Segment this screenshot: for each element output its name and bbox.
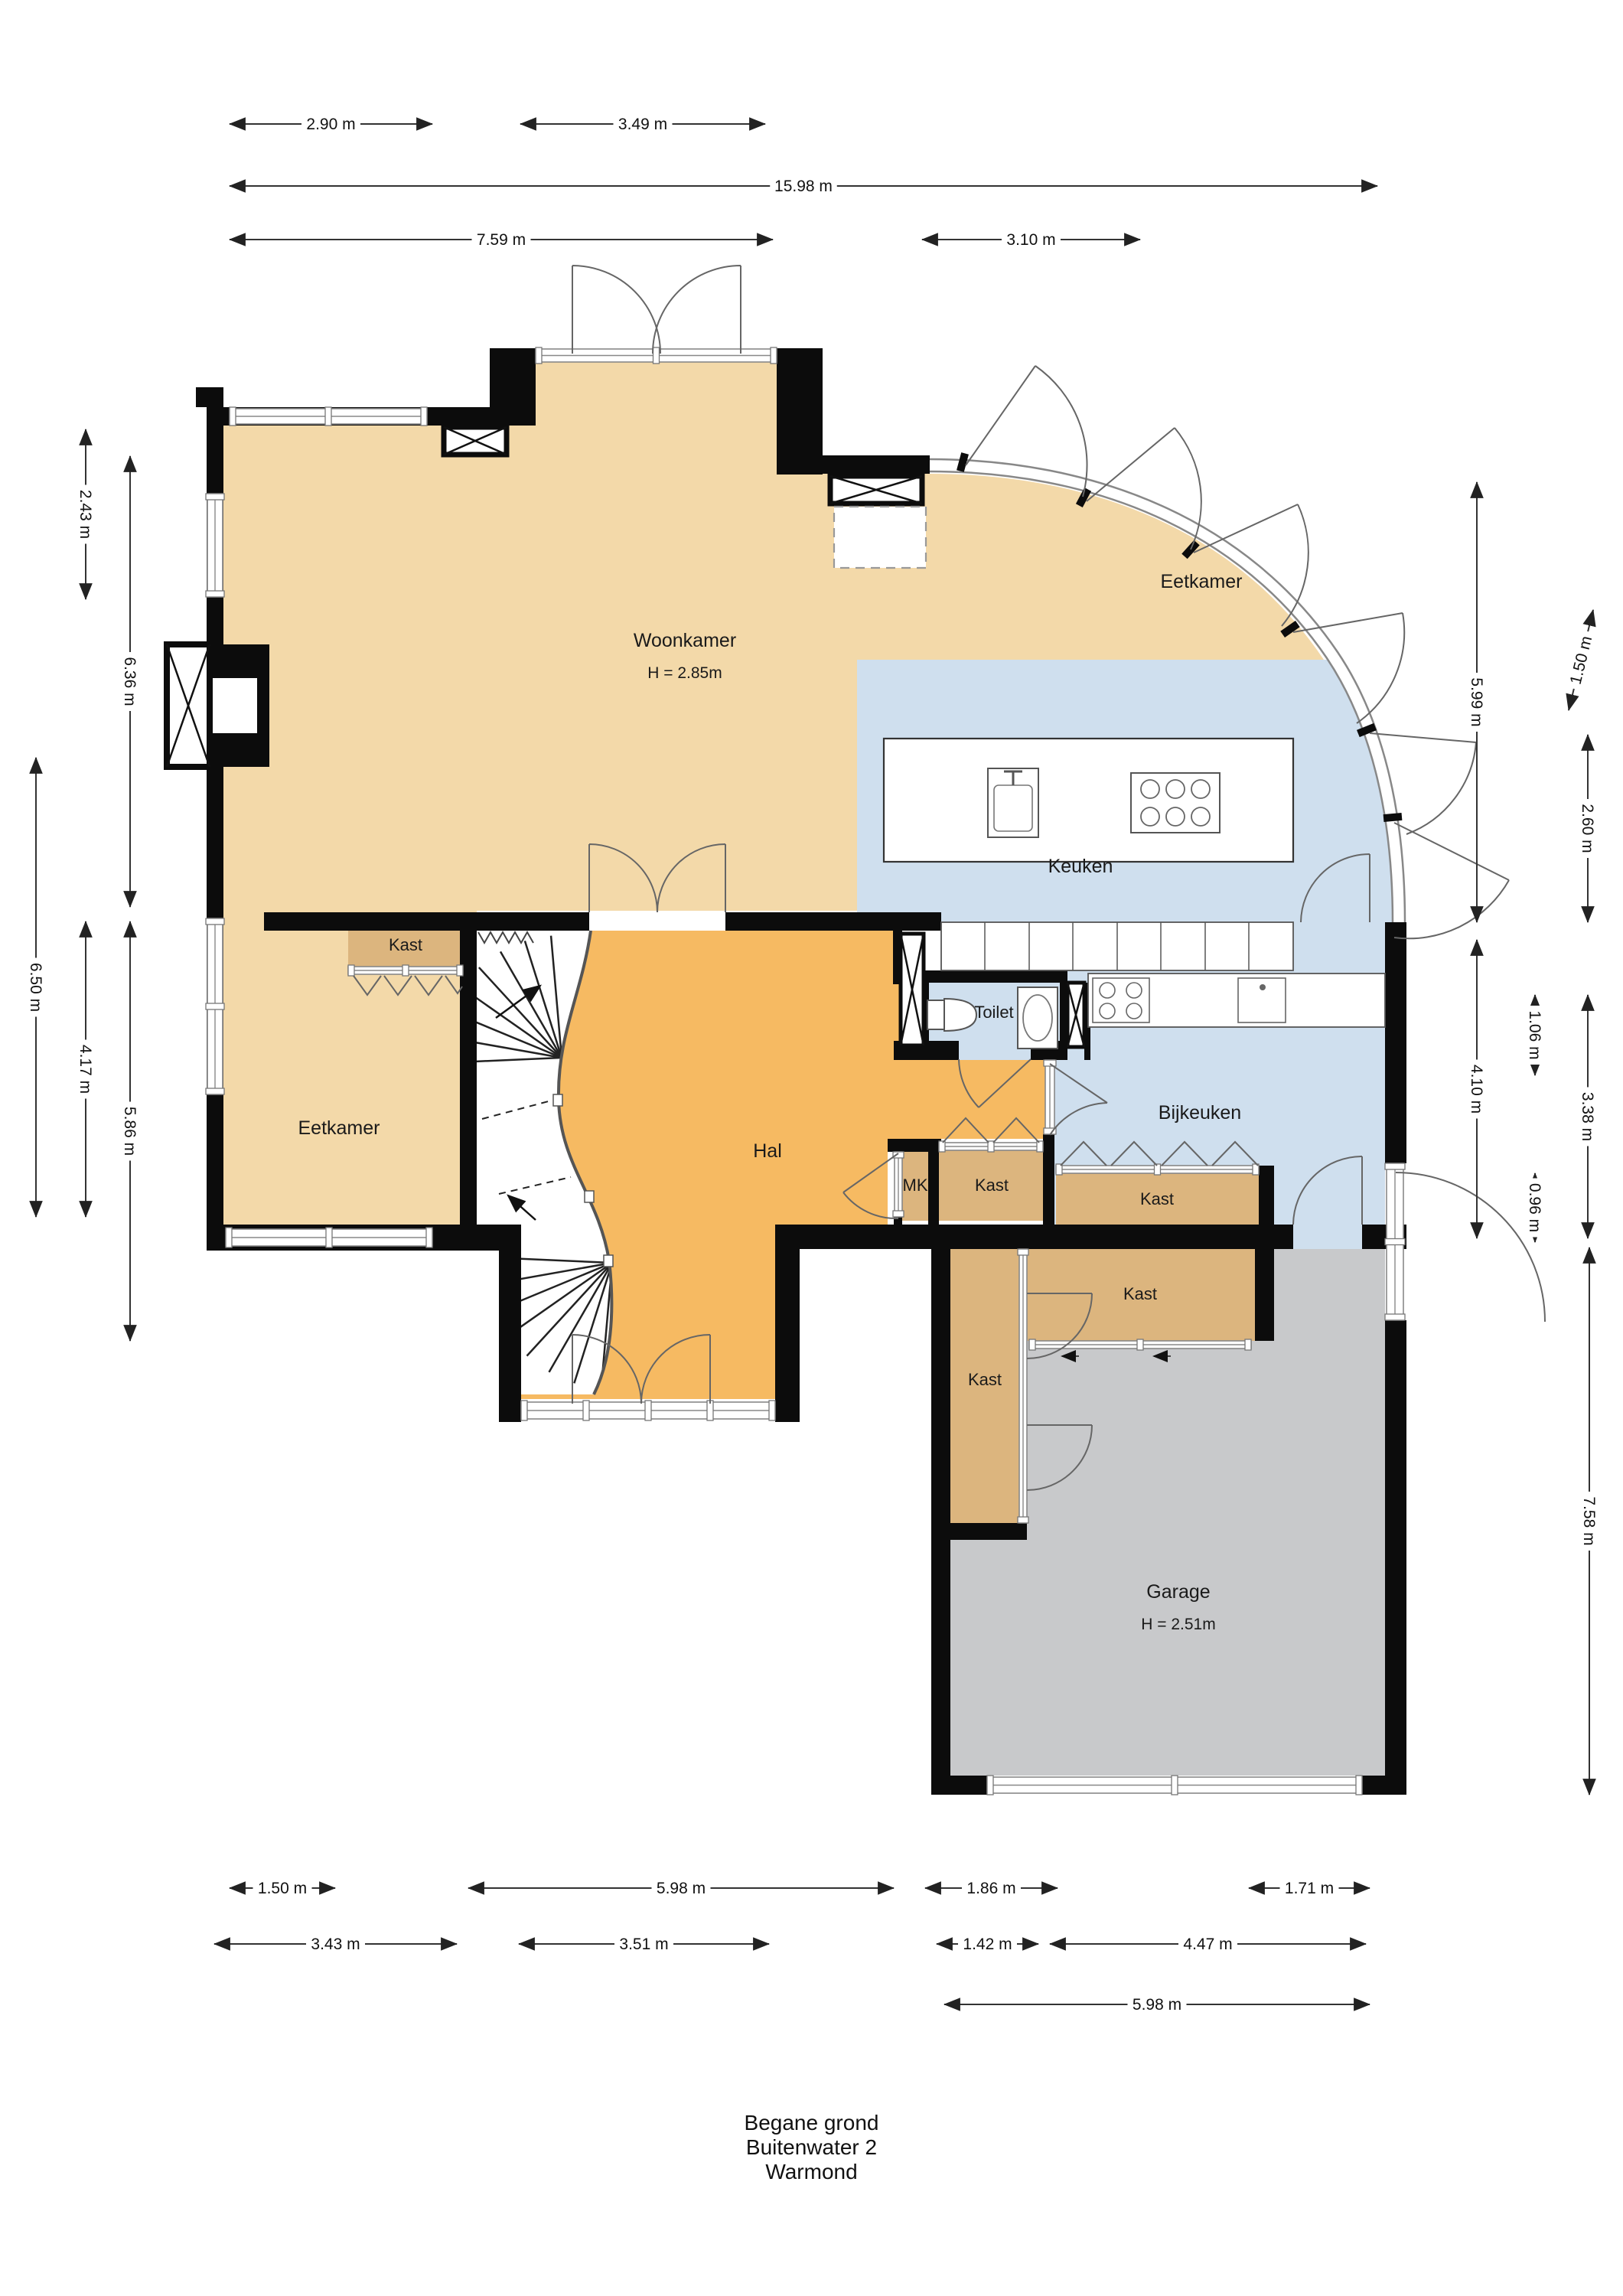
wall-segment <box>1043 1134 1054 1225</box>
window-mullion <box>1172 1776 1178 1795</box>
window-mullion <box>988 1141 994 1152</box>
door-swing <box>1396 1172 1545 1322</box>
dimension-label: 2.60 m <box>1579 804 1596 853</box>
window-mullion <box>1385 1314 1405 1320</box>
window-mullion <box>1044 1060 1056 1066</box>
wall-segment <box>1255 1249 1274 1341</box>
dimension-label: 3.43 m <box>311 1936 360 1953</box>
dimension-label: 15.98 m <box>774 178 833 195</box>
dimension-bottom-25: 4.47 m <box>1050 1934 1366 1954</box>
wall-segment <box>210 644 269 678</box>
window-mullion <box>457 965 463 976</box>
room-sublabel-woonkamer: H = 2.85m <box>647 664 722 682</box>
dimension-left-6: 6.36 m <box>120 456 140 907</box>
window-mullion <box>893 1152 904 1158</box>
window-mullion <box>536 347 542 364</box>
dimension-label: 7.58 m <box>1580 1496 1598 1545</box>
dimension-label: 3.10 m <box>1006 231 1055 249</box>
window-mullion <box>206 494 224 500</box>
window-mullion <box>1018 1517 1028 1523</box>
dimension-label: 5.98 m <box>1133 1996 1181 2014</box>
dimension-label: 2.43 m <box>77 490 94 539</box>
dimension-right-12: 2.60 m <box>1578 735 1598 922</box>
wall-segment <box>499 1225 521 1422</box>
dimension-label: 1.71 m <box>1285 1880 1334 1897</box>
room-label-mk: MK <box>903 1176 928 1195</box>
wall-segment <box>264 912 589 931</box>
wall-segment <box>1385 922 1406 1163</box>
dimension-right-10: 5.99 m <box>1467 482 1487 922</box>
wall-segment <box>928 1152 939 1225</box>
dimension-bottom-22: 3.43 m <box>214 1934 457 1954</box>
dimension-label: 4.10 m <box>1468 1065 1485 1114</box>
wall-segment <box>777 348 823 475</box>
dimension-right-13: 4.10 m <box>1467 940 1487 1238</box>
window-mullion <box>326 1228 332 1247</box>
wall-segment <box>775 1399 800 1422</box>
wall-segment <box>460 912 477 1225</box>
room-label-eetkamer-boven: Eetkamer <box>1161 571 1243 592</box>
dimension-label: 7.59 m <box>477 231 526 249</box>
dimension-left-9: 5.86 m <box>120 921 140 1341</box>
door-swing <box>572 266 660 354</box>
room-label-kast-1: Kast <box>975 1176 1009 1195</box>
wall-segment <box>823 455 930 474</box>
wall-segment <box>931 1776 987 1795</box>
window-mullion <box>206 1003 224 1009</box>
dimension-label: 4.47 m <box>1183 1936 1232 1953</box>
room-label-kast-trap: Kast <box>389 935 422 954</box>
window-mullion <box>402 965 409 976</box>
dimension-bottom-19: 5.98 m <box>468 1878 894 1898</box>
wall-segment <box>210 733 269 767</box>
dimension-label: 2.90 m <box>306 116 355 133</box>
wall-segment <box>775 1225 800 1422</box>
dimension-label: 4.17 m <box>77 1045 94 1094</box>
wall-segment <box>931 1523 1027 1540</box>
dimension-label: 3.51 m <box>619 1936 668 1953</box>
window-mullion <box>325 407 331 426</box>
wall-segment <box>888 1139 941 1152</box>
window-mullion <box>771 347 777 364</box>
caption-floor: Begane grond <box>0 2111 1623 2135</box>
room-label-kast-2: Kast <box>1140 1189 1174 1208</box>
dimension-top-3: 7.59 m <box>230 230 773 249</box>
dimension-label: 1.50 m <box>258 1880 307 1897</box>
wall-segment <box>931 1249 950 1795</box>
railing-joint <box>585 1191 594 1202</box>
caption-address: Buitenwater 2 <box>0 2135 1623 2160</box>
door-swing <box>1394 823 1509 938</box>
dimension-bottom-18: 1.50 m <box>230 1878 335 1898</box>
window-mullion <box>653 347 660 364</box>
overhang-dashed <box>834 507 926 568</box>
window-mullion <box>1037 1141 1043 1152</box>
window-mullion <box>206 591 224 597</box>
dimension-label: 6.50 m <box>27 963 44 1012</box>
wall-segment <box>490 348 536 426</box>
floorplan-canvas: 2.90 m3.49 m15.98 m7.59 m3.10 m2.43 m6.3… <box>0 0 1623 2296</box>
dimension-right-17: 7.58 m <box>1579 1247 1599 1795</box>
dimension-label: 1.42 m <box>963 1936 1012 1953</box>
railing-joint <box>553 1094 562 1106</box>
dimension-right-11: 1.50 m <box>1564 610 1598 710</box>
dimension-label: 5.86 m <box>121 1107 139 1156</box>
dimension-bottom-24: 1.42 m <box>937 1934 1038 1954</box>
window-mullion <box>1155 1164 1161 1175</box>
window-mullion <box>893 1211 904 1217</box>
dimension-bottom-23: 3.51 m <box>519 1934 769 1954</box>
wall-segment <box>257 678 269 733</box>
dimension-top-0: 2.90 m <box>230 114 432 134</box>
room-label-hal: Hal <box>753 1140 782 1162</box>
sink-faucet-dot <box>1260 984 1266 990</box>
window-mullion <box>1018 1249 1028 1255</box>
window-mullion <box>426 1228 432 1247</box>
door-swing <box>653 266 741 354</box>
room-label-keuken: Keuken <box>1048 856 1113 877</box>
dimension-label: 6.36 m <box>121 657 139 706</box>
room-label-kast-4: Kast <box>1123 1284 1157 1303</box>
window-mullion <box>1029 1339 1035 1350</box>
railing-joint <box>604 1255 613 1267</box>
window-mullion <box>583 1401 589 1420</box>
dimension-label: 5.98 m <box>657 1880 706 1897</box>
window-mullion <box>421 407 427 426</box>
window-mullion <box>521 1401 527 1420</box>
window-mullion <box>1137 1339 1143 1350</box>
door-hinge-wedge <box>1383 813 1403 822</box>
window-mullion <box>206 1088 224 1094</box>
dimension-label: 1.86 m <box>966 1880 1015 1897</box>
dimension-top-2: 15.98 m <box>230 176 1377 196</box>
window-mullion <box>645 1401 651 1420</box>
room-label-bijkeuken: Bijkeuken <box>1159 1102 1241 1124</box>
room-sublabel-garage: H = 2.51m <box>1141 1616 1215 1633</box>
room-label-eetkamer-links: Eetkamer <box>298 1117 380 1139</box>
wc-cistern <box>927 1000 944 1029</box>
room-label-toilet: Toilet <box>974 1003 1013 1022</box>
dimension-label: 3.49 m <box>618 116 667 133</box>
window-mullion <box>1385 1239 1405 1245</box>
room-label-woonkamer: Woonkamer <box>634 630 736 651</box>
dimension-left-5: 2.43 m <box>76 429 96 599</box>
wall-segment <box>196 387 223 407</box>
wall-segment <box>1385 1320 1406 1795</box>
room-label-garage: Garage <box>1146 1581 1210 1603</box>
wall-segment <box>725 912 941 931</box>
window-mullion <box>206 918 224 925</box>
window-mullion <box>1245 1339 1251 1350</box>
dimension-left-8: 4.17 m <box>76 921 96 1217</box>
window-mullion <box>226 1228 232 1247</box>
window-mullion <box>1385 1163 1405 1169</box>
dimension-right-15: 3.38 m <box>1578 995 1598 1238</box>
room-label-kast-3: Kast <box>968 1370 1002 1389</box>
window-mullion <box>348 965 354 976</box>
kitchen-island <box>884 739 1293 862</box>
fireplace-hearth <box>211 678 257 733</box>
window-mullion <box>769 1401 775 1420</box>
dimension-label: 5.99 m <box>1468 677 1485 726</box>
dimension-top-1: 3.49 m <box>520 114 765 134</box>
dimension-label: 1.06 m <box>1526 1010 1543 1059</box>
dimension-left-7: 6.50 m <box>26 758 46 1217</box>
wall-segment <box>800 1225 1293 1249</box>
dimension-top-4: 3.10 m <box>922 230 1140 249</box>
plan-caption: Begane grond Buitenwater 2 Warmond <box>0 2111 1623 2184</box>
dimension-bottom-26: 5.98 m <box>944 1994 1370 2014</box>
window-mullion <box>1356 1776 1362 1795</box>
dimension-bottom-20: 1.86 m <box>925 1878 1058 1898</box>
island-sink-basin <box>994 785 1032 831</box>
dimension-label: 3.38 m <box>1579 1092 1596 1141</box>
dimension-bottom-21: 1.71 m <box>1249 1878 1370 1898</box>
caption-city: Warmond <box>0 2160 1623 2184</box>
window-mullion <box>230 407 236 426</box>
wall-segment <box>922 970 1067 983</box>
window-mullion <box>987 1776 993 1795</box>
wall-segment <box>1259 1166 1274 1225</box>
dimension-right-14: 1.06 m <box>1525 995 1545 1075</box>
dimension-label: 0.96 m <box>1526 1183 1543 1232</box>
wall-segment <box>499 1399 521 1422</box>
dimension-right-16: 0.96 m <box>1525 1173 1545 1242</box>
window-mullion <box>939 1141 945 1152</box>
